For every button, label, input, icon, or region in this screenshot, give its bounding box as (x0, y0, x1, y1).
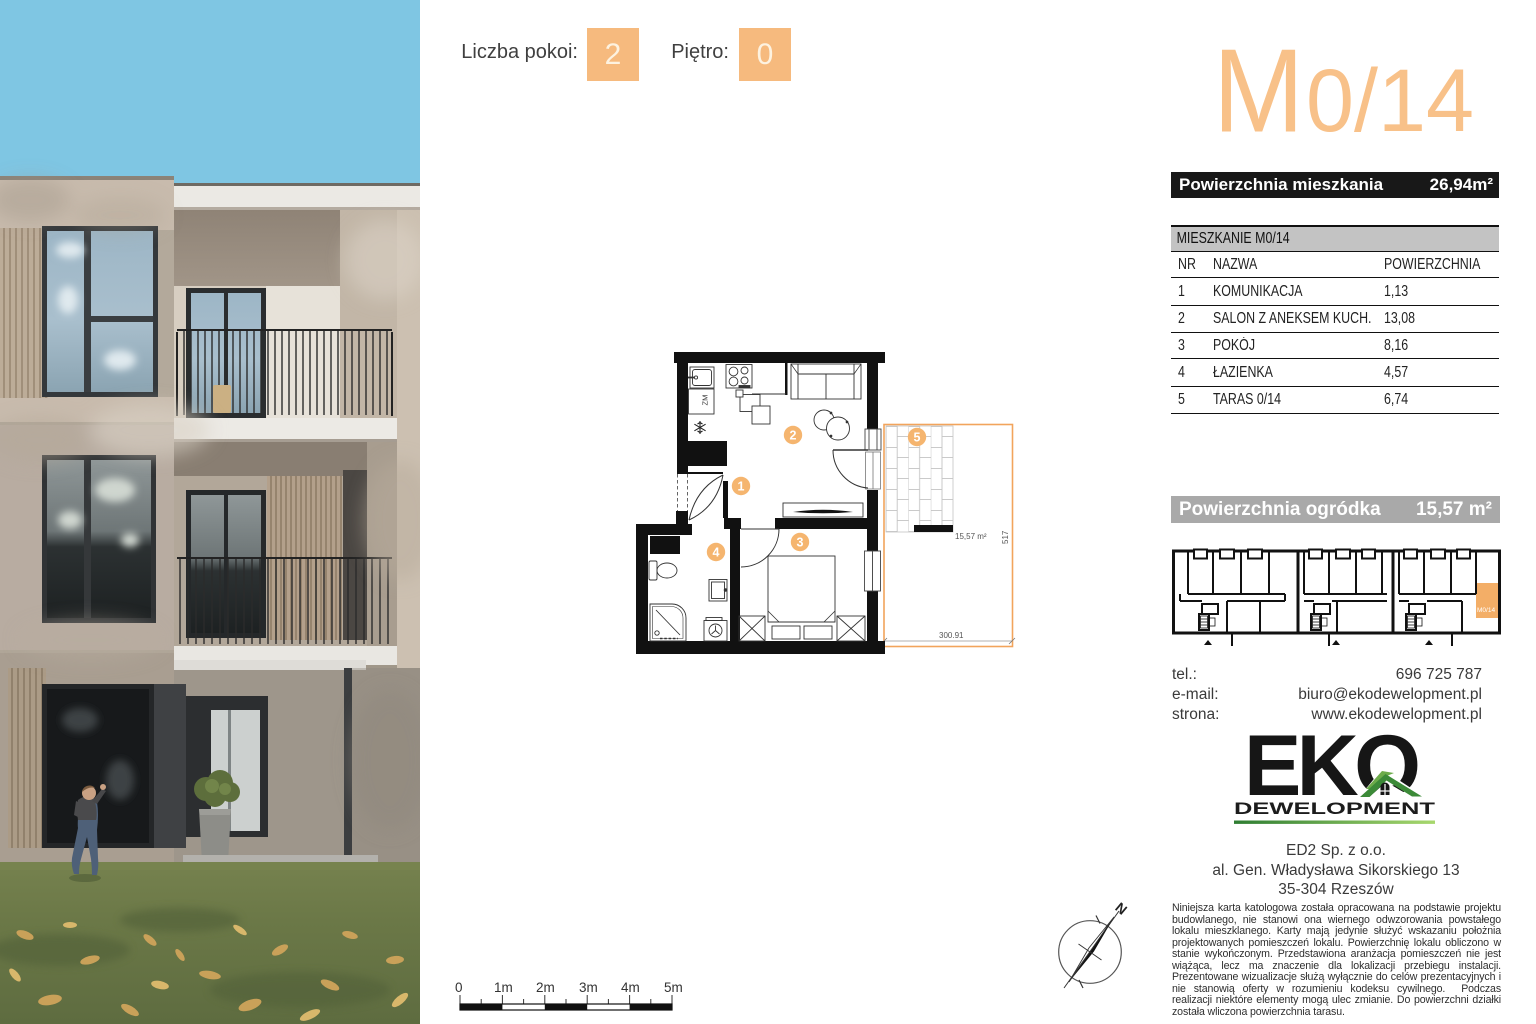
svg-text:5: 5 (914, 431, 921, 445)
svg-text:3: 3 (797, 536, 804, 550)
svg-text:0/14: 0/14 (1306, 50, 1474, 145)
svg-text:ZM: ZM (701, 395, 710, 406)
svg-text:0: 0 (455, 980, 463, 995)
svg-text:1: 1 (738, 480, 745, 494)
svg-text:1m: 1m (494, 980, 513, 995)
svg-text:2: 2 (790, 429, 797, 443)
svg-text:3m: 3m (579, 980, 598, 995)
svg-text:5m: 5m (664, 980, 683, 995)
svg-text:M: M (1222, 40, 1304, 145)
svg-text:300.91: 300.91 (939, 631, 964, 640)
svg-text:517: 517 (1001, 530, 1010, 544)
svg-text:2m: 2m (536, 980, 555, 995)
svg-text:4m: 4m (621, 980, 640, 995)
svg-text:DEWELOPMENT: DEWELOPMENT (1234, 799, 1436, 818)
svg-text:M0/14: M0/14 (1477, 607, 1495, 614)
svg-text:4: 4 (713, 546, 720, 560)
svg-text:15,57 m²: 15,57 m² (955, 532, 987, 541)
svg-text:N: N (1112, 899, 1130, 918)
